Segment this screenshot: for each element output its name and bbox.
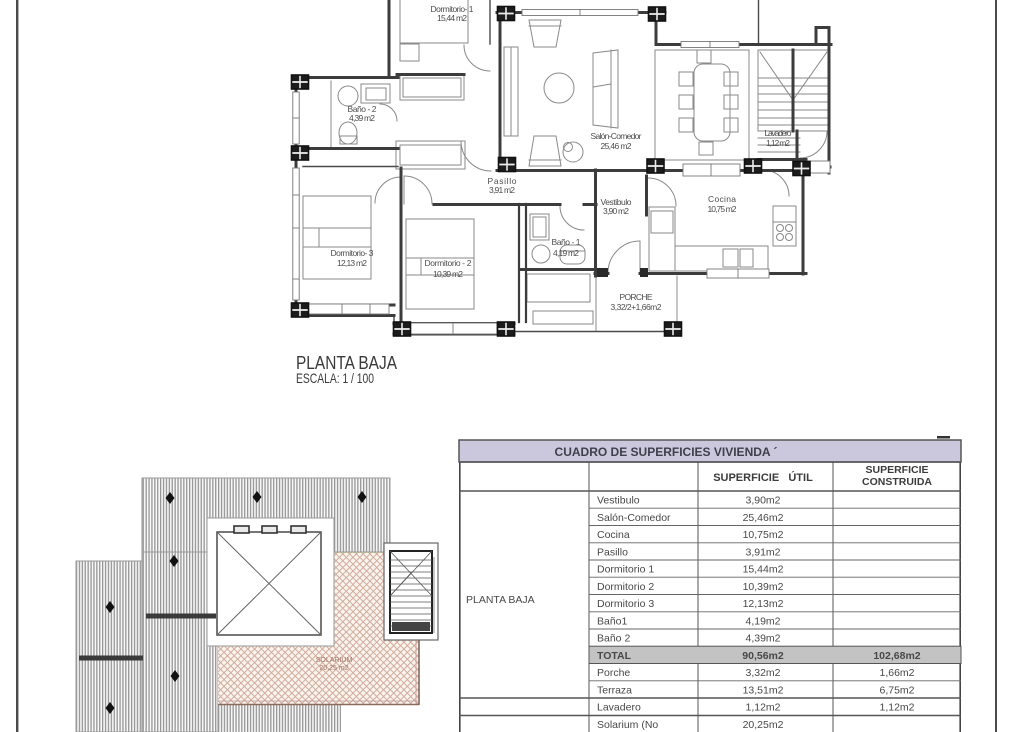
svg-text:25,46m2: 25,46m2 <box>743 512 784 524</box>
svg-text:SOLARIUM: SOLARIUM <box>316 657 353 664</box>
svg-text:3,91 m2: 3,91 m2 <box>489 185 515 195</box>
svg-text:SUPERFICIE: SUPERFICIE <box>865 464 928 476</box>
svg-text:1,12 m2: 1,12 m2 <box>766 138 790 148</box>
svg-text:4,19 m2: 4,19 m2 <box>553 248 579 258</box>
svg-text:Dormitorio - 2: Dormitorio - 2 <box>425 258 472 268</box>
svg-text:90,56m2: 90,56m2 <box>742 650 784 662</box>
svg-text:4,39m2: 4,39m2 <box>745 633 780 645</box>
svg-text:20,25 m2: 20,25 m2 <box>319 665 348 672</box>
svg-text:PORCHE: PORCHE <box>620 292 653 302</box>
svg-text:20,25m2: 20,25m2 <box>743 719 784 731</box>
svg-text:15,44 m2: 15,44 m2 <box>437 13 467 23</box>
svg-text:Terraza: Terraza <box>597 684 632 696</box>
svg-text:Porche: Porche <box>597 667 630 679</box>
svg-text:102,68m2: 102,68m2 <box>873 650 920 662</box>
svg-text:6,75m2: 6,75m2 <box>879 684 914 696</box>
svg-text:4,19m2: 4,19m2 <box>745 615 780 627</box>
svg-text:10,75 m2: 10,75 m2 <box>708 204 737 214</box>
svg-text:3,32m2: 3,32m2 <box>745 667 780 679</box>
svg-text:Cocina: Cocina <box>708 194 736 204</box>
svg-text:Dormitorio- 3: Dormitorio- 3 <box>331 248 374 258</box>
svg-text:12,13 m2: 12,13 m2 <box>337 258 367 268</box>
svg-text:TOTAL: TOTAL <box>597 650 632 662</box>
svg-text:10,39m2: 10,39m2 <box>743 581 784 593</box>
svg-text:Dormitorio 1: Dormitorio 1 <box>597 564 654 576</box>
svg-text:Salón-Comedor: Salón-Comedor <box>597 512 671 524</box>
svg-text:CUADRO DE SUPERFICIES VIVIEND: CUADRO DE SUPERFICIES VIVIENDA ´ <box>555 445 778 459</box>
svg-text:Baño - 1: Baño - 1 <box>552 237 581 247</box>
svg-text:Dormitorio 2: Dormitorio 2 <box>597 581 654 593</box>
svg-text:Dormitorio 3: Dormitorio 3 <box>597 598 654 610</box>
svg-text:12,13m2: 12,13m2 <box>743 598 784 610</box>
svg-text:CONSTRUIDA: CONSTRUIDA <box>862 476 932 488</box>
svg-text:4,39 m2: 4,39 m2 <box>349 113 375 123</box>
svg-text:PLANTA BAJA: PLANTA BAJA <box>466 594 535 606</box>
svg-text:Lavadero: Lavadero <box>597 702 641 714</box>
svg-text:3,90m2: 3,90m2 <box>745 495 780 507</box>
svg-text:ESCALA: 1 / 100: ESCALA: 1 / 100 <box>296 370 374 386</box>
svg-text:Lavadero: Lavadero <box>765 128 792 138</box>
svg-text:1,66m2: 1,66m2 <box>879 667 914 679</box>
svg-text:13,51m2: 13,51m2 <box>743 684 784 696</box>
svg-text:SUPERFICIE ÚTIL: SUPERFICIE ÚTIL <box>713 471 813 484</box>
svg-text:Vestibulo: Vestibulo <box>597 495 640 507</box>
svg-text:25,46 m2: 25,46 m2 <box>601 141 632 151</box>
svg-text:Baño1: Baño1 <box>597 615 628 627</box>
svg-text:1,12m2: 1,12m2 <box>745 702 780 714</box>
svg-text:10,75m2: 10,75m2 <box>743 529 784 541</box>
svg-text:Salón-Comedor: Salón-Comedor <box>591 131 642 141</box>
svg-text:3,90 m2: 3,90 m2 <box>603 206 629 216</box>
svg-text:Baño 2: Baño 2 <box>597 633 630 645</box>
svg-text:Cocina: Cocina <box>597 529 630 541</box>
svg-text:15,44m2: 15,44m2 <box>743 564 784 576</box>
svg-text:10,39 m2: 10,39 m2 <box>433 269 463 279</box>
svg-text:1,12m2: 1,12m2 <box>879 702 914 714</box>
svg-text:3,91m2: 3,91m2 <box>745 546 780 558</box>
svg-text:3,32/2+1,66m2: 3,32/2+1,66m2 <box>611 302 662 312</box>
svg-text:Solarium (No: Solarium (No <box>597 719 658 731</box>
svg-text:Pasillo: Pasillo <box>597 546 628 558</box>
